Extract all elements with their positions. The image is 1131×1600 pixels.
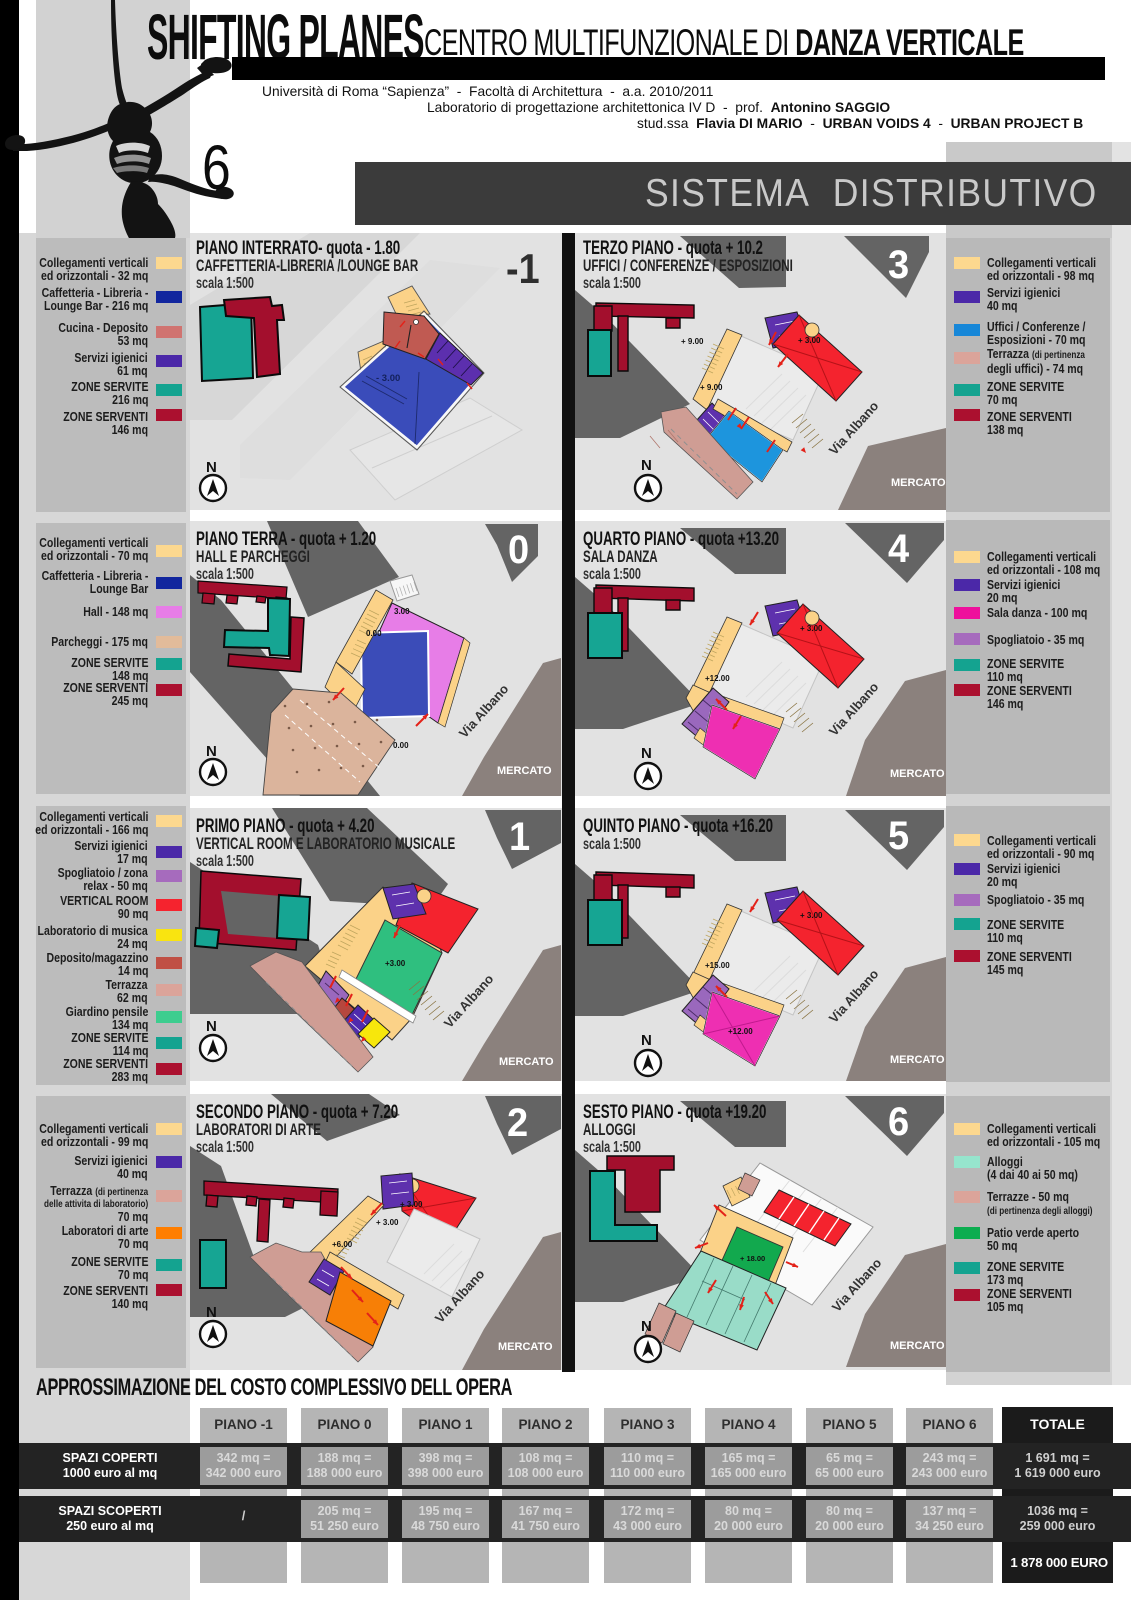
svg-text:MERCATO: MERCATO	[499, 1056, 554, 1068]
svg-text:+ 9.00: + 9.00	[681, 337, 704, 346]
svg-text:+ 3.00: + 3.00	[800, 624, 823, 633]
svg-text:Via Albano: Via Albano	[441, 971, 497, 1030]
svg-text:MERCATO: MERCATO	[891, 477, 946, 489]
svg-text:+ 18.00: + 18.00	[740, 1254, 765, 1263]
svg-text:+12.00: +12.00	[728, 1027, 753, 1036]
svg-text:N: N	[641, 457, 652, 474]
svg-text:N: N	[641, 1032, 652, 1049]
svg-text:+ 3.00: + 3.00	[800, 911, 823, 920]
svg-text:N: N	[206, 1304, 217, 1321]
svg-text:N: N	[206, 743, 217, 760]
svg-text:N: N	[206, 1018, 217, 1035]
svg-text:0.00: 0.00	[366, 629, 382, 638]
svg-text:+ 3.00: + 3.00	[376, 1218, 399, 1227]
svg-text:N: N	[206, 459, 217, 476]
svg-text:+15.00: +15.00	[705, 961, 730, 970]
svg-text:MERCATO: MERCATO	[890, 768, 945, 780]
svg-text:+3.00: +3.00	[385, 959, 406, 968]
svg-text:+12.00: +12.00	[705, 674, 730, 683]
svg-text:N: N	[641, 745, 652, 762]
svg-text:+ 9.00: + 9.00	[700, 383, 723, 392]
svg-text:3.00: 3.00	[394, 607, 410, 616]
svg-text:MERCATO: MERCATO	[890, 1054, 945, 1066]
svg-text:N: N	[641, 1318, 652, 1335]
svg-text:MERCATO: MERCATO	[497, 765, 552, 777]
svg-text:- 3.00: - 3.00	[376, 373, 400, 384]
svg-text:+6.00: +6.00	[332, 1240, 353, 1249]
svg-text:MERCATO: MERCATO	[890, 1340, 945, 1352]
svg-text:0.00: 0.00	[393, 741, 409, 750]
svg-text:+ 3.00: + 3.00	[400, 1200, 423, 1209]
svg-text:+ 3.00: + 3.00	[798, 336, 821, 345]
svg-text:MERCATO: MERCATO	[498, 1341, 553, 1353]
